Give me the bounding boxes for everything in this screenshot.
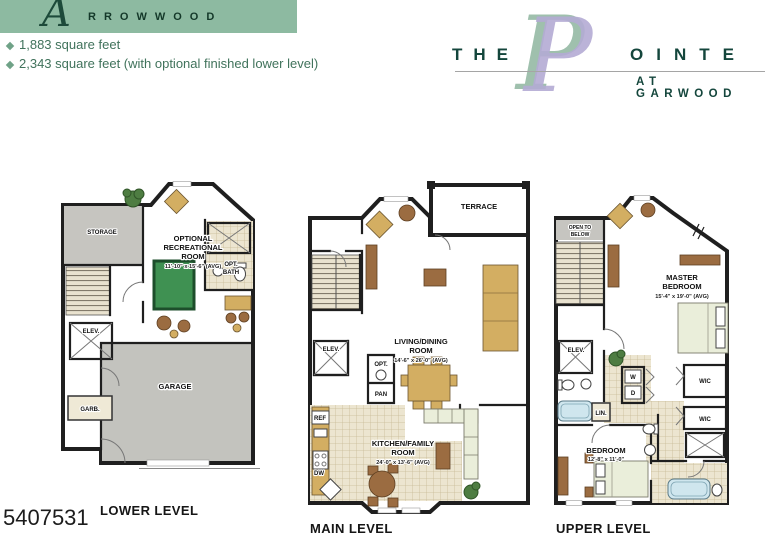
coffee-table xyxy=(424,269,446,286)
stairs xyxy=(66,267,110,315)
plan-name-text: RROWWOOD xyxy=(88,11,222,23)
opt-bath-label: OPT. xyxy=(224,262,238,268)
master-bed xyxy=(678,303,728,353)
refrigerator-label: REF xyxy=(314,416,326,422)
washer-label: W xyxy=(630,375,636,381)
dishwasher-label: DW xyxy=(314,471,324,477)
terrace-post xyxy=(522,181,530,189)
linen-label: LIN. xyxy=(595,411,607,417)
window xyxy=(616,501,632,506)
garage-label: GARAGE xyxy=(159,382,192,391)
brand-monogram: P P xyxy=(516,0,626,115)
feature-list: 1,883 square feet 2,343 square feet (wit… xyxy=(7,37,318,75)
terrace-post xyxy=(427,181,435,189)
bay-window xyxy=(173,182,191,187)
brochure-page: A RROWWOOD 1,883 square feet 2,343 squar… xyxy=(0,0,768,545)
window xyxy=(402,508,420,513)
toilet-icon xyxy=(376,370,386,380)
dresser xyxy=(558,457,568,495)
bay-window xyxy=(384,197,408,202)
dryer-label: D xyxy=(631,391,636,397)
upper-level-label: UPPER LEVEL xyxy=(556,521,651,536)
round-chair xyxy=(399,205,415,221)
diamond-bullet-icon xyxy=(6,61,14,69)
bathtub-icon xyxy=(558,401,592,421)
opt-bath-label: BATH xyxy=(223,270,239,276)
open-to-below-label: BELOW xyxy=(571,232,590,238)
feature-item: 2,343 square feet (with optional finishe… xyxy=(7,56,318,75)
bedroom-label: BEDROOM xyxy=(586,446,625,455)
photo-id: 5407531 xyxy=(3,505,89,531)
rec-room-label: RECREATIONAL xyxy=(163,243,222,252)
elevator-label: ELEV. xyxy=(323,347,340,353)
logo-word-the: THE xyxy=(452,45,519,65)
opt-powder-label: OPT. xyxy=(374,362,388,368)
bar-counter xyxy=(225,296,251,332)
sink-icon xyxy=(645,445,656,456)
storage-label: STORAGE xyxy=(87,230,117,236)
toilet-icon xyxy=(558,380,574,390)
feature-item: 1,883 square feet xyxy=(7,37,318,56)
logo-subtitle: AT GARWOOD xyxy=(636,76,768,100)
nightstand xyxy=(585,487,593,497)
bathtub-icon xyxy=(668,479,710,499)
plan-initial-letter: A xyxy=(42,0,71,36)
living-room-label: ROOM xyxy=(409,346,432,355)
terrace-label: TERRACE xyxy=(461,202,497,211)
armchair xyxy=(164,189,188,213)
master-bedroom-dim: 15'-4" x 19'-0" (AVG) xyxy=(655,294,709,300)
toilet-icon xyxy=(643,424,658,434)
garbage-label: GARB. xyxy=(80,407,100,413)
upper-level-floor-plan: OPEN TO BELOW MASTER BEDROOM 15'-4" x 19… xyxy=(546,163,768,520)
logo-word-ointe: OINTE xyxy=(630,45,747,65)
lower-level-label: LOWER LEVEL xyxy=(100,503,198,518)
armchair xyxy=(607,203,632,228)
elevator-label: ELEV. xyxy=(83,329,100,335)
feature-text: 1,883 square feet xyxy=(19,37,120,52)
logo-divider-line xyxy=(455,71,765,72)
garage-room xyxy=(102,344,251,461)
rec-room-dim: 11'-10" x 15'-6" (AVG) xyxy=(165,264,222,270)
rec-room-label: OPTIONAL xyxy=(174,234,213,243)
kitchen-dim: 24'-0" x 13'-6" (AVG) xyxy=(376,460,430,466)
dresser xyxy=(608,245,619,287)
bedroom-dim: 12'-8" x 11'-0" xyxy=(588,457,625,463)
elevator-label: ELEV. xyxy=(568,348,585,354)
kitchen-label: KITCHEN/FAMILY xyxy=(372,439,434,448)
sofa xyxy=(483,265,518,351)
living-room-dim: 14'-6" x 26'-0" (AVG) xyxy=(394,358,448,364)
monogram-letter-lavender: P xyxy=(524,2,593,112)
opt-bath-floor xyxy=(205,221,253,290)
coffee-table xyxy=(436,443,450,469)
window xyxy=(378,508,396,513)
bed xyxy=(594,461,648,497)
open-to-below-label: OPEN TO xyxy=(569,225,592,231)
pantry-label: PAN xyxy=(375,392,387,398)
garage-door xyxy=(147,460,209,466)
toilet-icon xyxy=(712,484,722,496)
kitchen-label: ROOM xyxy=(391,448,414,457)
master-bedroom-label: MASTER xyxy=(666,273,698,282)
diamond-bullet-icon xyxy=(6,42,14,50)
wic-label: WIC xyxy=(699,417,711,423)
dining-table xyxy=(401,357,457,409)
rec-room-label: ROOM xyxy=(181,252,204,261)
lower-level-floor-plan: STORAGE OPTIONAL RECREATIONAL ROOM 11'-1… xyxy=(55,170,260,470)
elevator-shaft xyxy=(559,341,592,373)
wic-label: WIC xyxy=(699,379,711,385)
sitting-chairs xyxy=(157,316,190,338)
master-bedroom-label: BEDROOM xyxy=(662,282,701,291)
houseplant-icon xyxy=(464,482,480,499)
dresser xyxy=(680,255,720,265)
shower xyxy=(686,433,724,457)
plan-name-banner: A RROWWOOD xyxy=(0,0,297,33)
living-room-label: LIVING/DINING xyxy=(394,337,448,346)
feature-text: 2,343 square feet (with optional finishe… xyxy=(19,56,318,71)
round-chair xyxy=(641,203,655,217)
main-level-floor-plan: TERRACE LIVING/DINING ROOM 14'-6" x 26'-… xyxy=(300,163,535,520)
armchair xyxy=(366,211,393,238)
bay-window xyxy=(634,196,650,201)
main-level-label: MAIN LEVEL xyxy=(310,521,393,536)
window xyxy=(566,501,582,506)
cabinet xyxy=(366,245,377,289)
sink-icon xyxy=(581,379,591,389)
